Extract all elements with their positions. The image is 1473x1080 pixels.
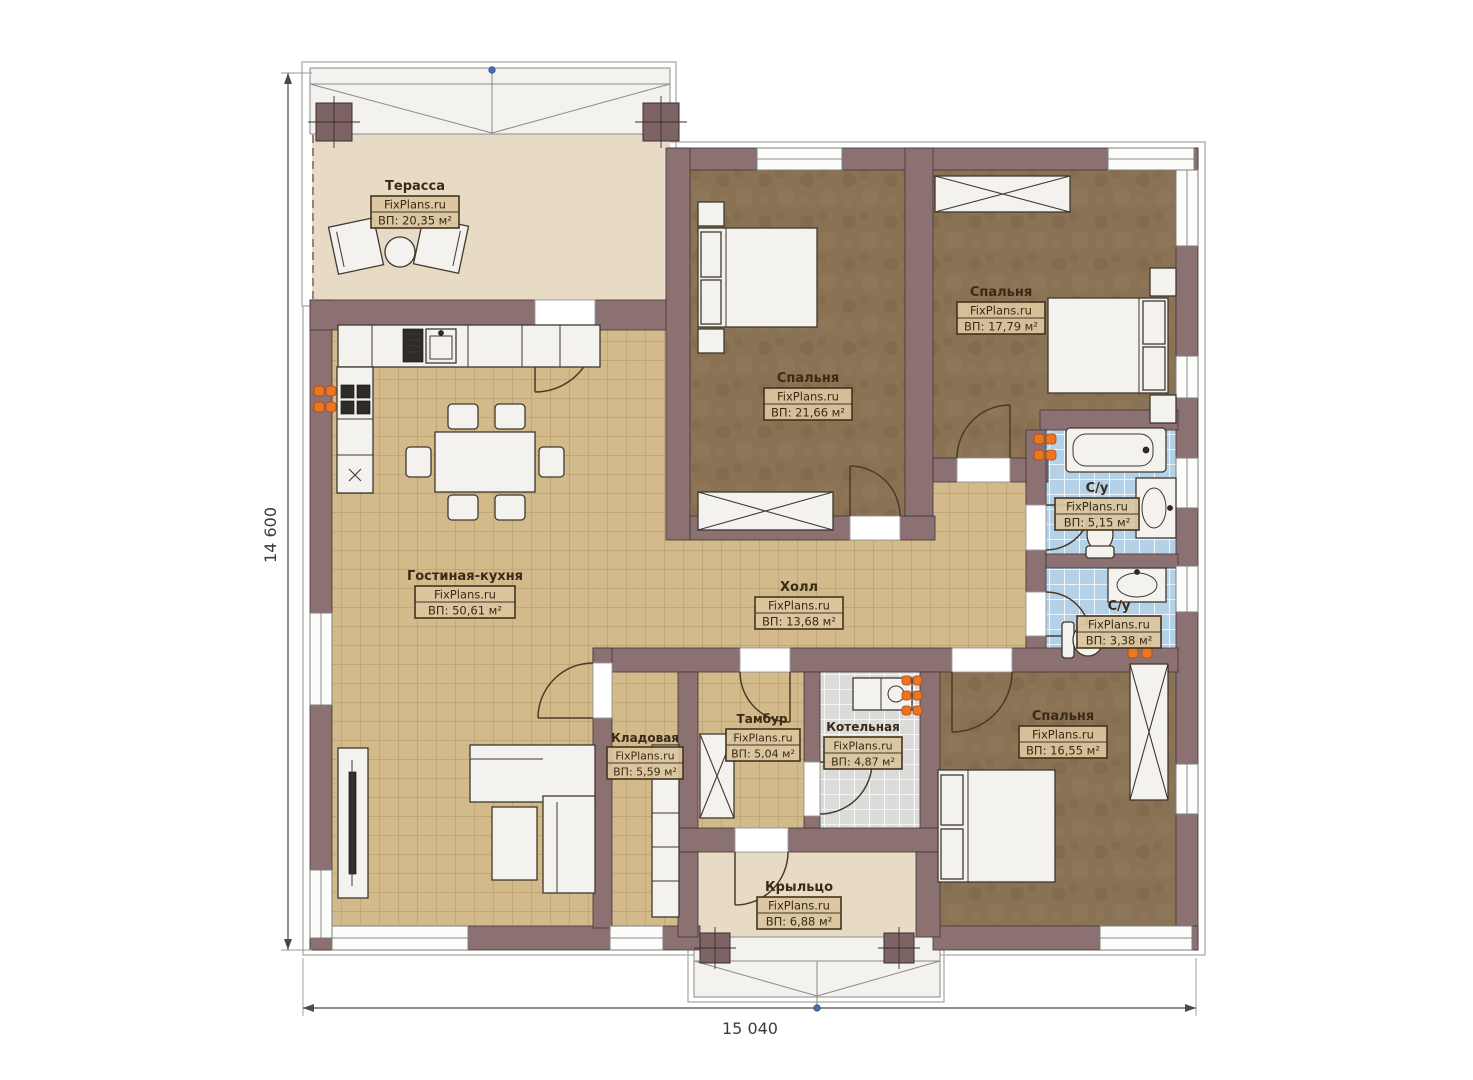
room-label-boiler-room: Котельная FixPlans.ru ВП: 4,87 м² (824, 720, 902, 769)
floor-plan-page: 14 600 15 040 Терасса FixPlans.ru ВП: 20… (0, 0, 1473, 1080)
room-area: ВП: 17,79 м² (964, 320, 1038, 334)
coffee-table (492, 807, 537, 880)
bathtub (1066, 428, 1166, 472)
room-name: Холл (780, 580, 818, 595)
dimension-height-label: 14 600 (261, 507, 280, 563)
porch-column (878, 927, 920, 969)
nightstand (1150, 395, 1176, 423)
kitchen-sink (426, 329, 456, 363)
window (1176, 356, 1198, 398)
room-area: ВП: 5,15 м² (1064, 516, 1131, 530)
wardrobe (935, 176, 1070, 212)
room-name: Спальня (1032, 709, 1094, 724)
room-label-bedroom-3: Спальня FixPlans.ru ВП: 16,55 м² (1019, 709, 1107, 758)
room-name: Спальня (970, 285, 1032, 300)
room-label-porch: Крыльцо FixPlans.ru ВП: 6,88 м² (757, 880, 841, 929)
brand-label: FixPlans.ru (1066, 500, 1128, 514)
window (1100, 926, 1192, 950)
sink (1108, 568, 1166, 602)
room-label-bedroom-1: Спальня FixPlans.ru ВП: 21,66 м² (764, 371, 852, 420)
room-area: ВП: 5,04 м² (731, 748, 795, 761)
dining-table (435, 432, 535, 492)
window (610, 926, 663, 950)
room-area: ВП: 16,55 м² (1026, 744, 1100, 758)
nightstand (698, 202, 724, 226)
room-label-living-kitchen: Гостиная-кухня FixPlans.ru ВП: 50,61 м² (407, 569, 523, 618)
window (1176, 764, 1198, 814)
room-area: ВП: 21,66 м² (771, 406, 845, 420)
nightstand (698, 329, 724, 353)
dimension-width-label: 15 040 (722, 1019, 778, 1038)
room-name: С/у (1108, 599, 1131, 614)
brand-label: FixPlans.ru (384, 198, 446, 212)
brand-label: FixPlans.ru (777, 390, 839, 404)
brand-label: FixPlans.ru (615, 750, 674, 763)
window (1176, 170, 1198, 246)
room-name: Гостиная-кухня (407, 569, 523, 584)
room-name: С/у (1086, 481, 1109, 496)
wardrobe (1130, 664, 1168, 800)
room-name: Терасса (385, 179, 445, 194)
window (1176, 458, 1198, 508)
brand-label: FixPlans.ru (833, 740, 892, 753)
hall-floor (668, 540, 1030, 650)
room-area: ВП: 50,61 м² (428, 604, 502, 618)
floor-plan-drawing: 14 600 15 040 Терасса FixPlans.ru ВП: 20… (0, 0, 1473, 1080)
room-label-storage: Кладовая FixPlans.ru ВП: 5,59 м² (607, 731, 683, 779)
room-name: Тамбур (737, 712, 788, 726)
room-label-bedroom-2: Спальня FixPlans.ru ВП: 17,79 м² (957, 285, 1045, 334)
hall-corridor-floor (933, 480, 1030, 544)
dimension-left: 14 600 (261, 73, 312, 950)
tv-unit (338, 748, 368, 898)
room-area: ВП: 20,35 м² (378, 214, 452, 228)
sink (1136, 478, 1176, 538)
room-area: ВП: 13,68 м² (762, 615, 836, 629)
room-name: Крыльцо (765, 880, 833, 895)
room-name: Кладовая (611, 731, 679, 745)
brand-label: FixPlans.ru (733, 732, 792, 745)
brand-label: FixPlans.ru (768, 599, 830, 613)
room-area: ВП: 5,59 м² (613, 766, 677, 779)
room-area: ВП: 4,87 м² (831, 756, 895, 769)
window (1176, 566, 1198, 612)
window (757, 148, 842, 170)
room-area: ВП: 3,38 м² (1086, 634, 1153, 648)
window (310, 870, 332, 938)
brand-label: FixPlans.ru (1088, 618, 1150, 632)
brand-label: FixPlans.ru (970, 304, 1032, 318)
terrace-column (635, 96, 687, 148)
nightstand (1150, 268, 1176, 296)
porch-column (694, 927, 736, 969)
terrace-floor (312, 133, 670, 303)
room-name: Котельная (826, 720, 900, 734)
brand-label: FixPlans.ru (768, 899, 830, 913)
terrace-column (308, 96, 360, 148)
terrace-table (385, 237, 415, 267)
window (332, 926, 468, 950)
brand-label: FixPlans.ru (434, 588, 496, 602)
room-area: ВП: 6,88 м² (766, 915, 833, 929)
wardrobe (698, 492, 833, 530)
brand-label: FixPlans.ru (1032, 728, 1094, 742)
window (1108, 148, 1194, 170)
room-name: Спальня (777, 371, 839, 386)
window (310, 613, 332, 705)
